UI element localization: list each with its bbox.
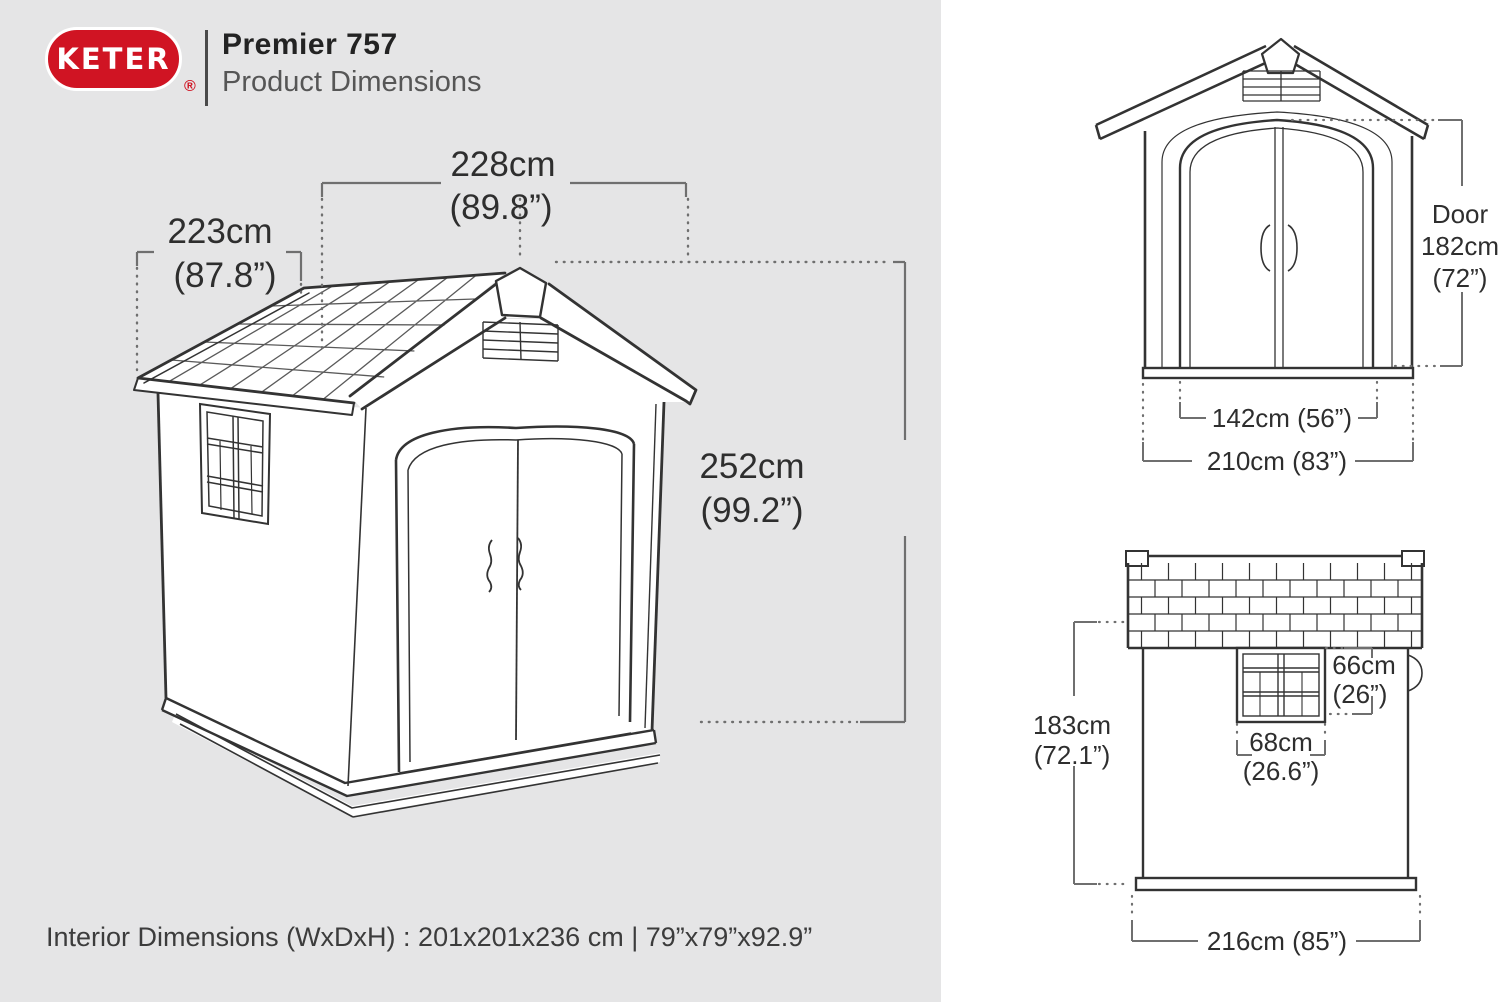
front-walls-doors xyxy=(1143,112,1413,378)
interior-dimensions-note: Interior Dimensions (WxDxH) : 201x201x23… xyxy=(46,922,812,953)
keter-logo: KETER xyxy=(45,27,182,91)
header-divider xyxy=(205,30,208,106)
front-door-handle-right xyxy=(1288,225,1297,271)
iso-height-in-label: (99.2”) xyxy=(700,491,803,531)
iso-depth-cm-label: 223cm xyxy=(167,212,272,252)
keter-logo-text: KETER xyxy=(56,42,170,76)
front-gable-vent xyxy=(1243,71,1320,101)
door-word-label: Door xyxy=(1432,199,1488,230)
front-door-handle-left xyxy=(1261,225,1270,271)
page: KETER ® Premier 757 Product Dimensions 2… xyxy=(0,0,1500,1002)
window-height-in-label: (26”) xyxy=(1333,679,1388,710)
iso-height-cm-label: 252cm xyxy=(699,447,804,487)
door-height-cm-label: 182cm xyxy=(1421,231,1499,262)
product-title: Premier 757 xyxy=(222,28,398,62)
side-window-iso xyxy=(200,404,270,524)
window-width-cm-label: 68cm xyxy=(1249,727,1313,758)
iso-width-cm-label: 228cm xyxy=(450,145,555,185)
front-view-drawing xyxy=(1096,39,1428,378)
iso-width-in-label: (89.8”) xyxy=(449,188,552,228)
front-overall-width-label: 210cm (83”) xyxy=(1207,446,1347,477)
window-height-cm-label: 66cm xyxy=(1332,650,1396,681)
roof-brick-pattern xyxy=(1142,563,1412,648)
side-overall-depth-label: 216cm (85”) xyxy=(1207,926,1347,957)
side-view-drawing xyxy=(1126,551,1424,890)
iso-shed-fill xyxy=(134,268,696,816)
page-subtitle: Product Dimensions xyxy=(222,66,482,99)
iso-depth-in-label: (87.8”) xyxy=(173,256,276,296)
window-width-in-label: (26.6”) xyxy=(1243,756,1320,787)
registered-trademark-icon: ® xyxy=(184,78,196,96)
front-roof xyxy=(1096,39,1428,139)
side-roof xyxy=(1126,551,1424,648)
door-height-in-label: (72”) xyxy=(1433,263,1488,294)
side-door-handle xyxy=(1408,655,1422,691)
side-height-cm-label: 183cm xyxy=(1033,710,1111,741)
front-base xyxy=(1143,368,1413,378)
front-dotted-extensions xyxy=(1143,120,1438,440)
door-width-label: 142cm (56”) xyxy=(1212,403,1352,434)
side-window xyxy=(1237,648,1325,722)
side-height-in-label: (72.1”) xyxy=(1034,740,1111,771)
side-base xyxy=(1136,878,1416,890)
iso-shed-drawing xyxy=(134,268,696,817)
